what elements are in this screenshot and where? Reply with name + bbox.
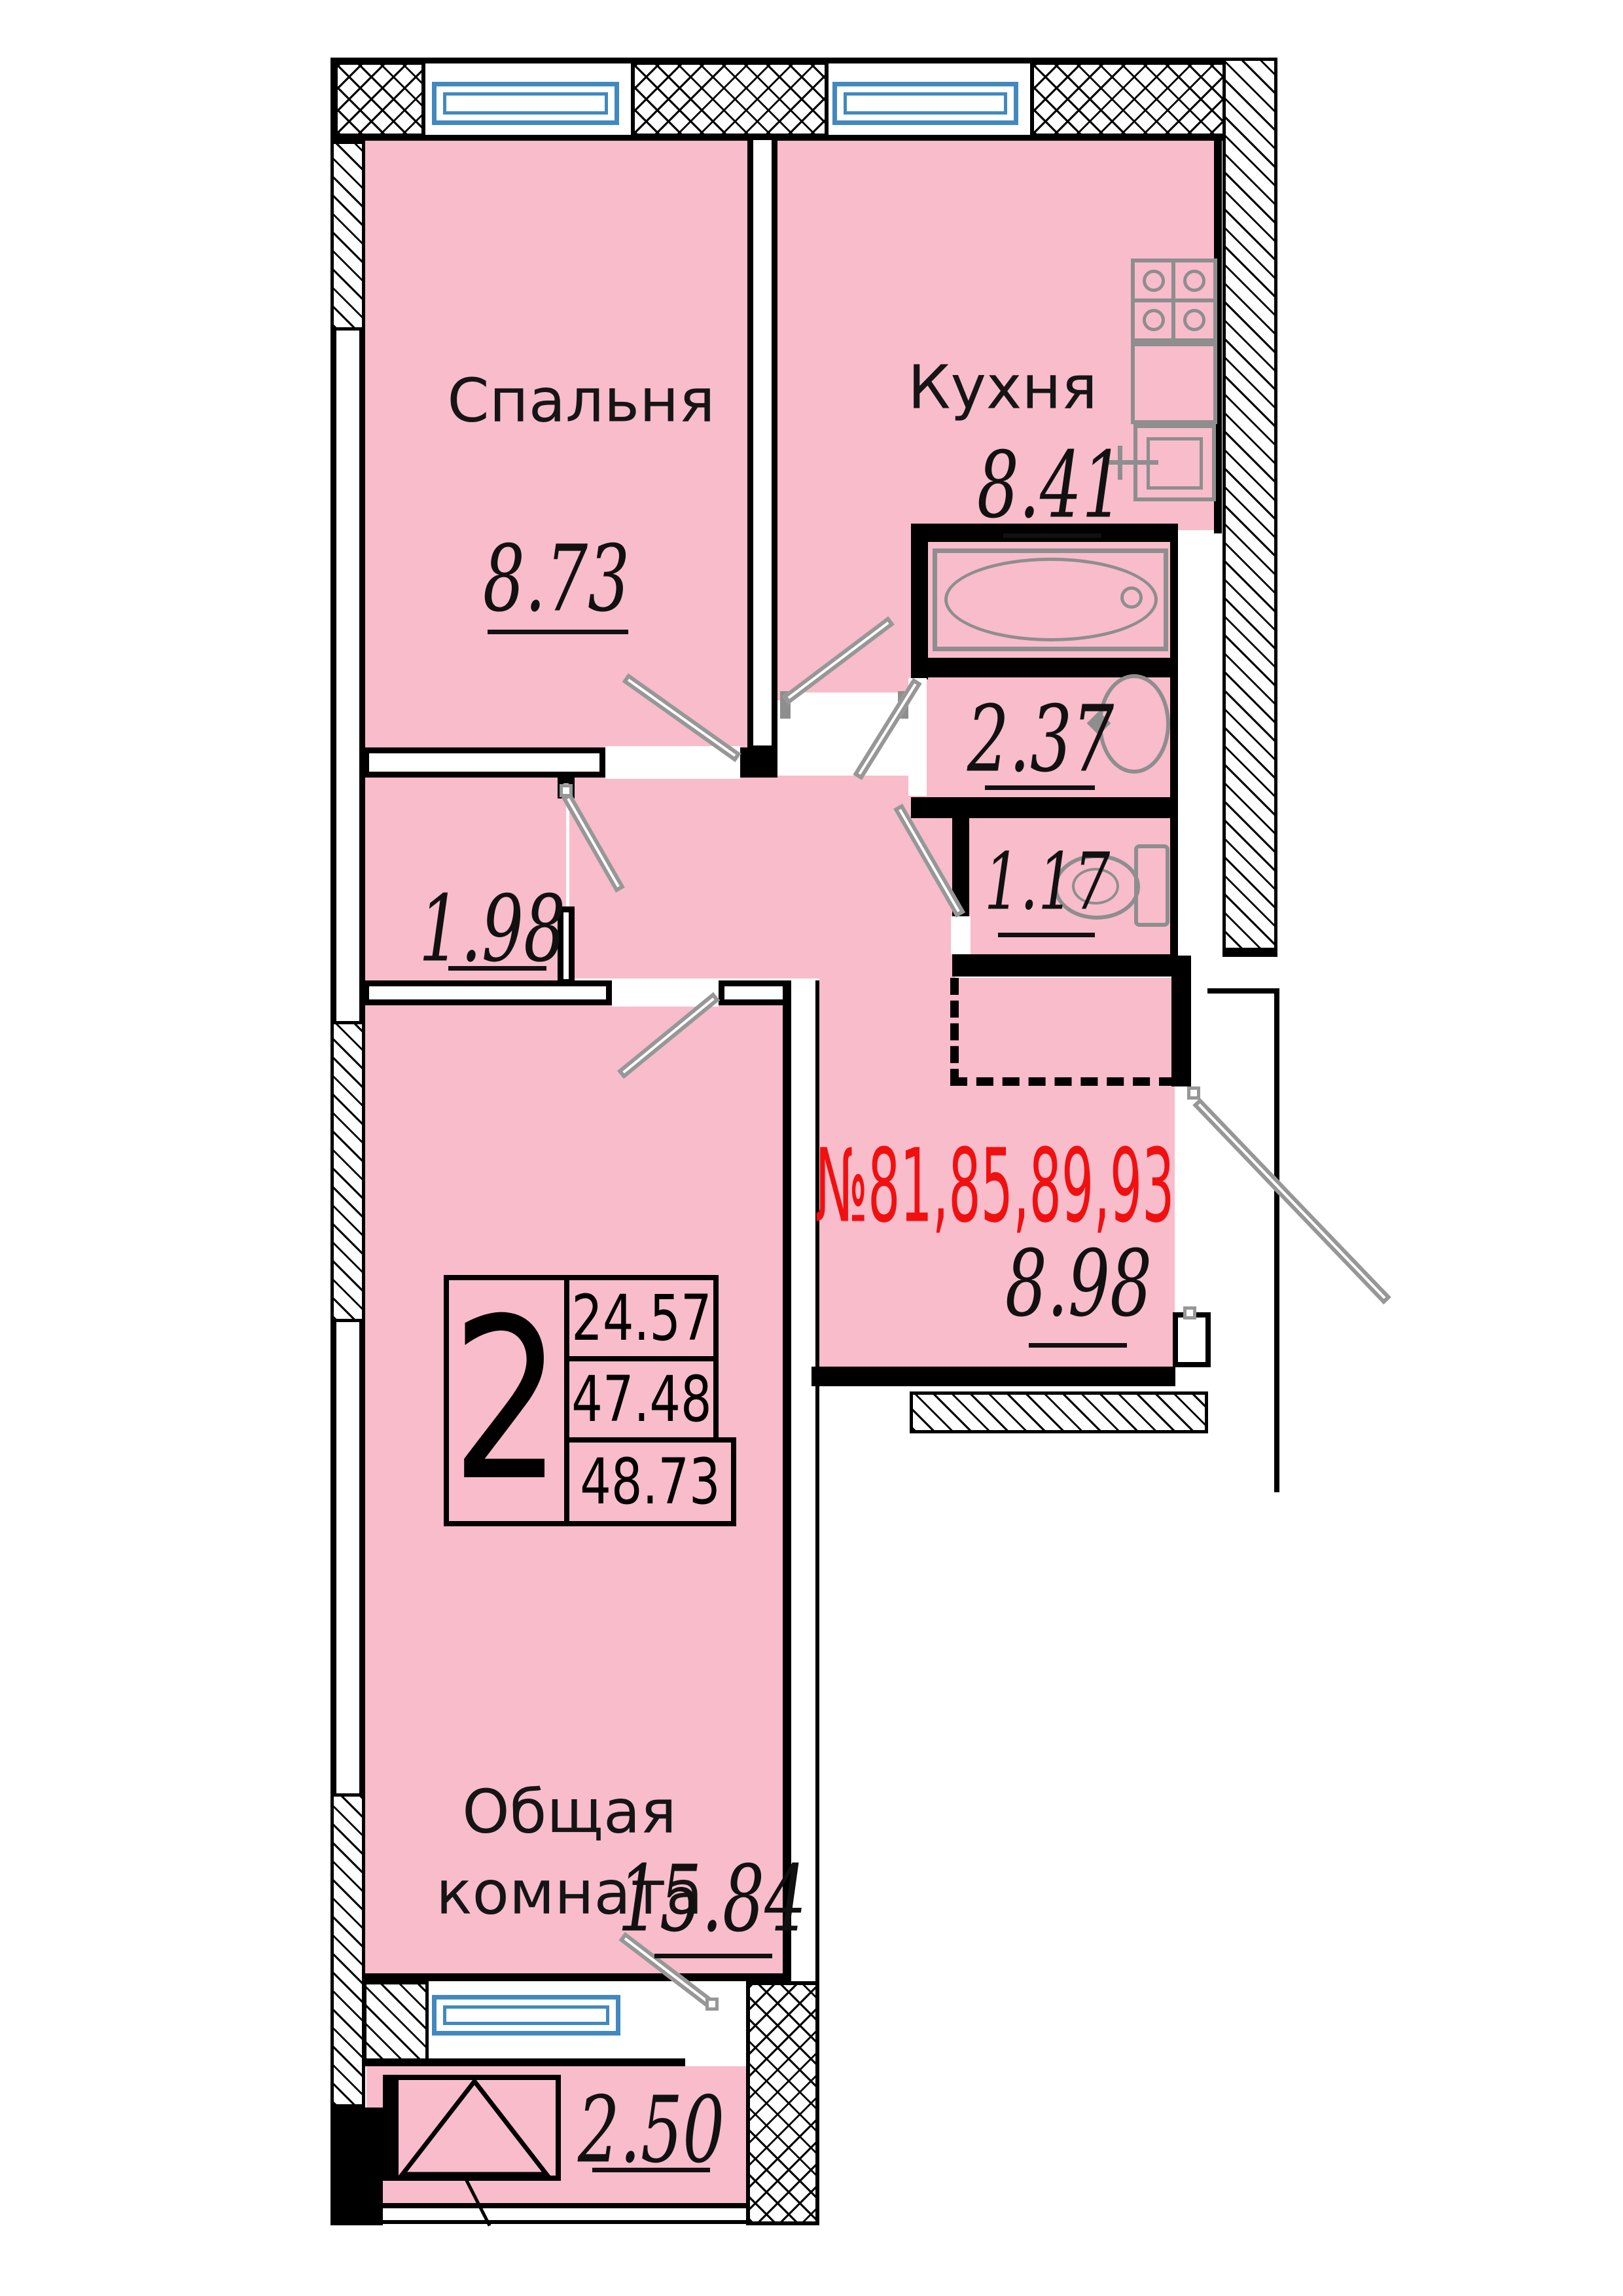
kitchen-area-underline [1003,533,1101,538]
door-hinge [1187,1086,1200,1100]
bathtub-drain [1120,586,1143,609]
left-pier-3 [330,1793,365,2108]
balcony-rail-2 [330,2220,746,2224]
wall-corner [740,747,777,778]
balcony-area-underline [592,2168,710,2172]
living-area: 15.84 [618,1846,807,1953]
hall-area-underline [1029,1343,1127,1348]
toilet-area-underline [998,933,1095,937]
bedroom-window [432,82,619,125]
bath-left-wall [911,524,928,679]
badge-apartment-area-cell: 47.48 [564,1356,719,1443]
burner [1183,270,1205,292]
escape-hatch-icon [383,2075,561,2181]
wall-hatch [334,61,425,137]
bathroom-area: 2.37 [967,687,1114,793]
badge-rooms-cell: 2 [444,1275,569,1526]
burner [1143,309,1165,331]
balcony-corner [330,2189,368,2225]
bedroom-area: 8.73 [483,526,630,633]
floor-plan: 2 24.57 47.48 48.73 Спальня 8.73 Кухня 8… [0,0,1623,2296]
window-glass [443,92,608,115]
badge-total-area-cell: 48.73 [564,1437,736,1526]
toilet-bottom-wall [952,954,1175,977]
left-pier-2 [330,1021,365,1322]
kitchen-counter [1131,342,1217,424]
badge-apartment-area: 47.48 [571,1363,711,1436]
landing-line-h [1207,988,1279,994]
badge-living-area: 24.57 [571,1282,711,1355]
living-window [432,1995,620,2036]
right-wall [1222,58,1277,956]
kitchen-area: 8.41 [977,433,1124,539]
wall-bedroom-kitchen [747,134,777,751]
balcony-right-pier [746,1981,819,2225]
door-hinge [560,784,573,797]
landing-line-v [1274,988,1279,1492]
apartment-numbers: №81,85,89,93 [815,1127,1175,1246]
living-area-underline [654,1954,772,1958]
toilet-door-opening [951,916,971,954]
hall-area: 8.98 [1005,1231,1152,1338]
corridor-hatch-band [910,1391,1208,1433]
niche-dashed-bottom [950,1077,1176,1086]
living-label-line1: Общая [462,1777,677,1847]
right-wall-cap [1222,948,1277,957]
kitchen-label: Кухня [908,353,1097,423]
toilet-area: 1.17 [984,837,1110,928]
window-glass [844,92,1007,115]
living-top-wall-left [363,980,612,1005]
washbasin-toilet-wall [911,797,1173,818]
left-pier-1 [330,141,365,331]
wall-hatch [1030,61,1243,137]
living-bottom-inner-line [363,1973,785,1981]
living-right-wall [783,980,819,1982]
badge-total-area: 48.73 [580,1445,720,1518]
living-bottom-outer-line [363,2058,685,2066]
wall-hatch [631,61,829,137]
badge-rooms-count: 2 [452,1289,562,1512]
closet-area-underline [448,966,546,971]
kitchen-door-opening [791,692,898,717]
entrance-niche-wall [1171,956,1191,1086]
sanitary-right-wall [1170,524,1178,977]
burner [1143,270,1165,292]
room-kitchen-arm [776,530,913,700]
window-glass [443,2005,609,2025]
door-hinge [1183,1306,1196,1319]
entrance-step [1173,1312,1211,1367]
hall-bottom-wall [811,1367,1175,1386]
balcony-rail-1 [330,2203,746,2208]
burner [1183,309,1205,331]
bedroom-label: Спальня [447,366,715,436]
kitchen-window [832,82,1018,125]
stove-divider-h [1133,298,1215,302]
living-bottom-left-pier [363,1981,429,2066]
wall-bedroom-bottom [363,747,605,778]
badge-living-area-cell: 24.57 [564,1275,719,1361]
bathroom-area-underline [985,785,1095,790]
room-bedroom [363,137,753,776]
door-hinge [705,1998,719,2011]
niche-dashed-left [950,978,959,1086]
bedroom-area-underline [488,630,628,634]
entrance-door [1192,1098,1391,1304]
